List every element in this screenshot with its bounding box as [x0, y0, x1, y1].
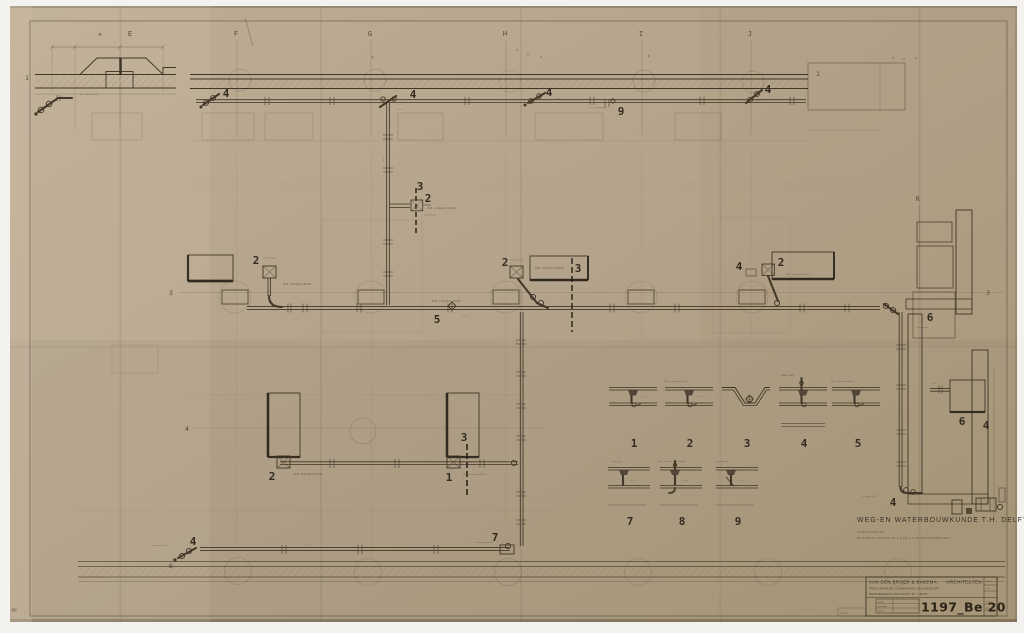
subtitle-2: RIOLERING TUSSEN AS 1-2 EN K-2 KRUIPRUIM…	[857, 536, 951, 540]
annotation-doucheput: doucheput	[917, 326, 928, 329]
callout-3: 3	[461, 431, 468, 444]
annotation-afv-geul: afv. geul ø 100	[152, 545, 168, 547]
titleblock-line2: PROCURATIE EN COORDINATIE J.B.RIJNSDORP	[869, 587, 939, 591]
callout-2: 2	[502, 256, 509, 269]
annotation-afv-goot: afv. goot ø 70	[862, 495, 877, 498]
annotation-dia70: ø 70	[233, 99, 238, 101]
detail-caption: W.B. schrobput 30x30	[664, 380, 688, 383]
detail-number: 3	[744, 437, 751, 450]
detail-number: 5	[855, 437, 862, 450]
callout-4: 4	[223, 87, 230, 100]
annotation-dia70: ø 70	[683, 480, 688, 482]
grid-letter-H: H	[503, 30, 507, 38]
annotation-dia70: ø 70	[932, 383, 937, 385]
annotation-ontstop: met ontstopstuk	[476, 541, 494, 544]
callout-2: 2	[269, 470, 276, 483]
annotation-schrobput: W.B. schrobput 30x30	[427, 206, 456, 210]
titleblock-line3: MEDEWERKEND ARCHITECT W. J. BOOT	[869, 592, 928, 596]
annotation-dia75: ø 75	[398, 109, 403, 111]
annotation-dia75: ø 75	[641, 396, 646, 398]
annotation-omlegging: ø 75 omlegging	[590, 107, 607, 109]
annotation-dia75: ø 75	[383, 157, 385, 162]
row-marker-3-right: 3	[986, 289, 990, 297]
callout-4: 4	[546, 86, 553, 99]
callout-2: 2	[778, 256, 785, 269]
grid-letter-E: E	[128, 30, 132, 38]
callout-4: 4	[765, 83, 772, 96]
corner-note: formaat	[841, 612, 848, 615]
detail-caption: vloer put met 1" standpijp	[658, 460, 686, 463]
annotation-dia70: ø 70	[516, 339, 518, 344]
callout-2: 2	[425, 192, 432, 205]
firm-role: ARCHITECTEN	[946, 580, 982, 585]
grid-letter-F: F	[234, 30, 238, 38]
callout-4: 4	[736, 260, 743, 273]
callout-6: 6	[959, 415, 966, 428]
annotation-schrobput: W.B. schrobput 30x30	[432, 299, 461, 303]
firm-name: VAN DEN BROEK & BAKEMA	[869, 580, 937, 585]
row-marker-1-left: 1	[25, 74, 29, 82]
annotation-dia70: ø 70	[739, 480, 744, 482]
drawing-number: 1197_Be 20	[921, 600, 1006, 616]
annotation-afv-goot: afv. goot ø 70	[752, 99, 767, 102]
field-datum: datum	[878, 601, 884, 604]
subtitle-1: HOOFDGEBOUW	[857, 530, 884, 534]
annotation-afv-asbest: afv. asbest ø 100	[80, 93, 99, 96]
callout-4: 4	[983, 419, 990, 432]
detail-number: 8	[679, 515, 686, 528]
annotation-dia70: ø 70	[462, 315, 467, 317]
annotation-schrobput: W.B. schrobput 30x30	[535, 266, 564, 270]
annotation-dia70: ø 70	[631, 480, 636, 482]
callout-4: 4	[190, 535, 197, 548]
side-row-0: schaal	[986, 581, 993, 583]
annotation-schrobput: W.B. schrobput 30x30	[283, 282, 312, 286]
row-marker-3-left: 3	[169, 289, 173, 297]
callout-3: 3	[575, 262, 582, 275]
annotation-schrobput: W.B. schrobput 30x30	[786, 273, 810, 276]
field-gewijzigd: gewijzigd	[878, 606, 887, 608]
detail-caption: W.B. schrobput 30x30	[831, 380, 855, 383]
detail-caption: ontstopstuk	[716, 460, 729, 463]
detail-caption: vloer put	[612, 460, 622, 463]
annotation-dia75: ø 75	[306, 544, 311, 546]
detail-caption: vloer goot	[781, 373, 794, 377]
drawing-sheet: e E F G H I J K	[0, 0, 1024, 633]
field-gezien: gezien	[878, 611, 885, 613]
detail-number: 4	[801, 437, 808, 450]
callout-4: 4	[410, 88, 417, 101]
row-marker-6-left: 6	[169, 562, 173, 570]
annotation-dia75: ø 75	[697, 396, 702, 398]
callout-5: 5	[434, 313, 441, 326]
row-marker-1-right: 1	[816, 70, 820, 78]
row-marker-4-left: 4	[185, 425, 189, 433]
grid-letter-G: G	[368, 30, 372, 38]
callout-9: 9	[618, 105, 625, 118]
callout-2: 2	[253, 254, 260, 267]
callout-4: 4	[890, 496, 897, 509]
grid-letter-J: J	[748, 30, 752, 38]
corner-smudge	[11, 608, 17, 612]
callout-6: 6	[927, 311, 934, 324]
detail-number: 7	[627, 515, 634, 528]
main-title: WEG-EN WATERBOUWKUNDE T.H. DELFT	[857, 517, 1024, 524]
grid-letter-I: I	[639, 30, 643, 38]
grid-letter-e: e	[98, 32, 101, 38]
annotation-schrobput: W.B. schrobput 30x30	[294, 472, 323, 476]
hatched-floor-band	[37, 76, 176, 87]
annotation-dia70: ø 70	[556, 98, 561, 100]
detail-number: 2	[687, 437, 694, 450]
callout-3: 3	[417, 180, 424, 193]
scanned-drawing-page: e E F G H I J K	[0, 0, 1024, 633]
detail-number: 9	[735, 515, 742, 528]
callout-1: 1	[446, 471, 453, 484]
detail-number: 1	[631, 437, 638, 450]
